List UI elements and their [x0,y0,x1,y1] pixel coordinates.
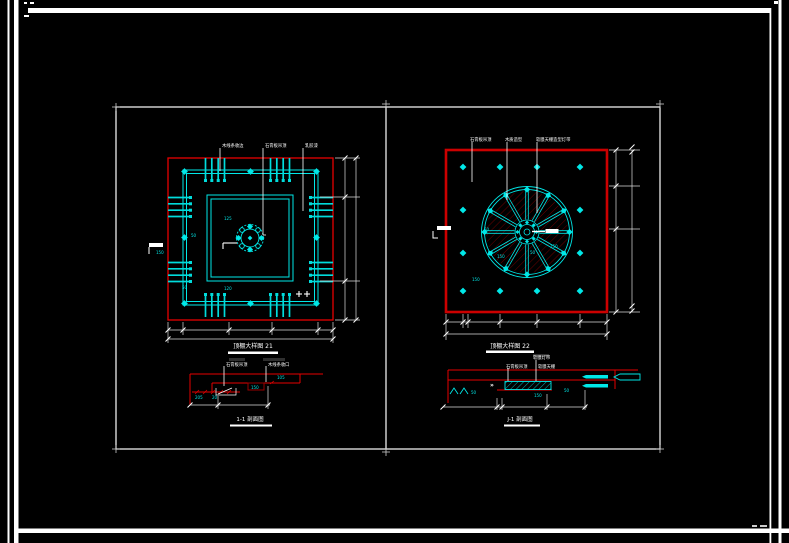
left-ceiling-plan: 木线条收边 石膏板吊顶 乳胶漆 125 50 150 50 120 [149,142,360,361]
left-plan-title-subnotes [229,358,285,361]
cad-drawing-canvas: 木线条收边 石膏板吊顶 乳胶漆 125 50 150 50 120 [0,0,789,543]
leader-label: 乳胶漆 [305,142,319,149]
left-section-title: 1-1 剖面图 [236,415,264,423]
right-plan-section-flag [433,226,451,238]
border-top-bar [28,8,770,13]
cad-sheet: 木线条收边 石膏板吊顶 乳胶漆 125 50 150 50 120 [0,0,789,543]
dim-text: 150 [251,385,259,390]
dim-text: 150 [534,393,542,398]
left-plan-title: 顶棚大样图 21 [233,342,273,350]
corner-marks [24,1,778,527]
leader-label: 石膏板吊顶 [265,142,287,149]
dim-text: 50 [484,227,490,232]
right-section-title-underline [504,425,540,427]
leader-label: 软膜灯带 [533,354,551,361]
left-plan-leaders [220,148,303,235]
right-section-dims [441,390,588,410]
leader-label: 软膜天棚 [538,363,555,370]
left-plan-title-underline [228,352,278,355]
right-ceiling-plan: 石膏板吊顶 木质造型 软膜天棚造型灯带 50 150 50 150 150 [433,136,640,357]
right-plan-title: 顶棚大样图 22 [490,342,530,350]
right-section-cyan-detail [450,374,640,394]
dim-text: 205 [195,395,203,400]
dim-text: 50 [191,233,197,238]
sheet-border [8,0,789,543]
dim-text: 150 [472,277,480,282]
dim-text: 125 [224,216,232,221]
leader-label: 石膏板吊顶 [470,136,492,143]
right-plan-title-underline [486,351,534,354]
dim-text: 150 [497,254,505,259]
dim-text: 50 [530,250,536,255]
leader-label: 石膏板吊顶 [226,361,248,368]
left-plan-bottom-dims [166,322,336,343]
dim-text: 50 [564,388,570,393]
dim-text: 105 [277,375,285,380]
dim-text: 20 [212,395,218,400]
dim-text: 50 [471,390,477,395]
ceiling-dome [482,187,573,278]
leader-label: 木线条收边 [222,142,244,149]
leader-label: 木线条收口 [268,361,289,368]
dim-text: 150 [550,244,558,249]
right-plan-bottom-dims [444,314,610,340]
leader-label: 木质造型 [505,136,523,143]
dim-text: 120 [224,286,232,291]
right-section-detail: » 软膜灯带 软膜天棚 石膏板吊顶 50 150 50 J-1 剖面图 [441,354,641,427]
left-plan-white-ticks [223,243,310,297]
dim-text: 150 [156,250,164,255]
leader-label: 石膏板吊顶 [506,363,528,370]
left-plan-right-dims [320,156,360,323]
left-section-detail: 石膏板吊顶 木线条收口 205 20 150 105 1-1 剖面图 [188,361,324,427]
border-right-thin [770,8,772,543]
drawing-frame [112,100,664,456]
frame-tick-marks [112,100,664,456]
right-plan-right-dims [609,145,640,315]
left-section-title-underline [230,425,272,427]
border-left-thick [14,0,19,543]
dim-text: 50 [182,285,188,290]
border-left-thin [8,0,10,543]
border-bottom-bar [18,529,789,534]
right-section-title: J-1 剖面图 [506,415,533,423]
ceiling-rosette [235,223,264,252]
flow-chevron: » [490,382,494,389]
leader-label: 软膜天棚造型灯带 [536,136,571,143]
border-right-thick [779,0,782,543]
